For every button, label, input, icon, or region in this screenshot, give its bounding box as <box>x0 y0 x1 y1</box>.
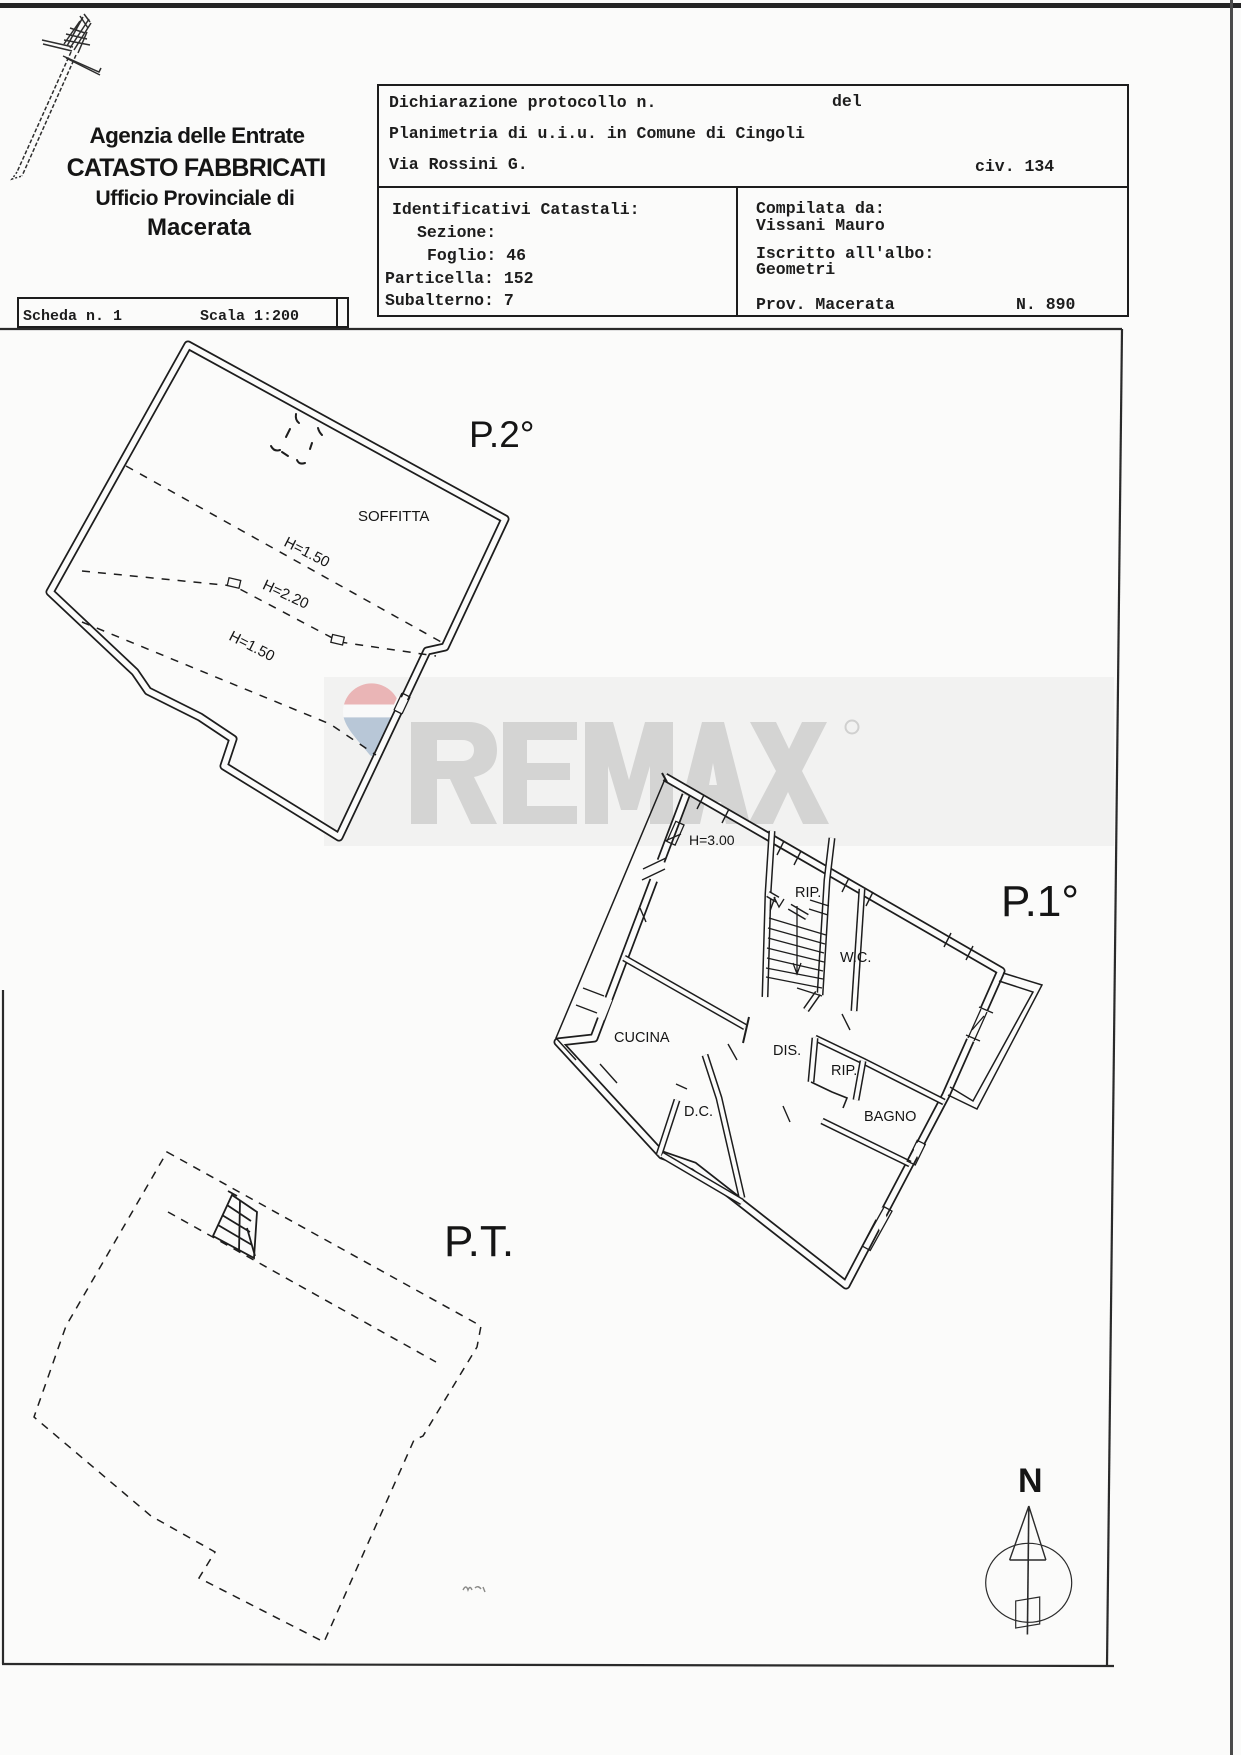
svg-text:Agenzia delle Entrate: Agenzia delle Entrate <box>90 123 305 148</box>
svg-text:P.2°: P.2° <box>469 414 535 455</box>
svg-text:Ufficio Provinciale di: Ufficio Provinciale di <box>96 187 295 210</box>
svg-text:H=1.50: H=1.50 <box>281 534 332 571</box>
svg-text:Planimetria di u.i.u. in Comun: Planimetria di u.i.u. in Comune di Cingo… <box>389 124 805 143</box>
svg-text:H=3.00: H=3.00 <box>689 832 735 848</box>
svg-text:Identificativi Catastali:: Identificativi Catastali: <box>392 200 640 219</box>
svg-text:N: N <box>1018 1462 1043 1500</box>
svg-text:Scheda n. 1: Scheda n. 1 <box>23 308 122 325</box>
svg-text:H=2.20: H=2.20 <box>260 577 311 613</box>
svg-text:W.C.: W.C. <box>840 950 871 966</box>
svg-text:SOFFITTA: SOFFITTA <box>358 508 429 525</box>
svg-text:P.T.: P.T. <box>444 1217 514 1266</box>
svg-text:Geometri: Geometri <box>756 260 835 279</box>
svg-text:CATASTO FABBRICATI: CATASTO FABBRICATI <box>67 154 326 182</box>
svg-text:N. 890: N. 890 <box>1016 295 1075 314</box>
svg-text:Sezione:: Sezione: <box>417 223 496 242</box>
svg-text:D.C.: D.C. <box>684 1104 713 1120</box>
svg-text:Prov. Macerata: Prov. Macerata <box>756 295 895 314</box>
svg-text:Scala 1:200: Scala 1:200 <box>200 308 299 325</box>
svg-text:Vissani Mauro: Vissani Mauro <box>756 216 885 235</box>
svg-text:H=1.50: H=1.50 <box>226 628 277 665</box>
svg-text:Macerata: Macerata <box>147 214 252 241</box>
svg-text:del: del <box>832 92 862 111</box>
svg-text:Dichiarazione protocollo n.: Dichiarazione protocollo n. <box>389 93 656 112</box>
svg-text:RIP.: RIP. <box>795 885 821 901</box>
svg-text:civ. 134: civ. 134 <box>975 157 1054 176</box>
svg-text:RIP.: RIP. <box>831 1063 857 1079</box>
svg-text:Particella: 152: Particella: 152 <box>385 269 534 288</box>
svg-text:BAGNO: BAGNO <box>864 1109 916 1125</box>
svg-text:Subalterno: 7: Subalterno: 7 <box>385 291 514 310</box>
svg-text:DIS.: DIS. <box>773 1043 801 1059</box>
svg-text:Foglio: 46: Foglio: 46 <box>427 246 526 265</box>
svg-text:P.1°: P.1° <box>1001 877 1079 926</box>
svg-text:Via Rossini G.: Via Rossini G. <box>389 155 528 174</box>
svg-text:CUCINA: CUCINA <box>614 1030 670 1046</box>
